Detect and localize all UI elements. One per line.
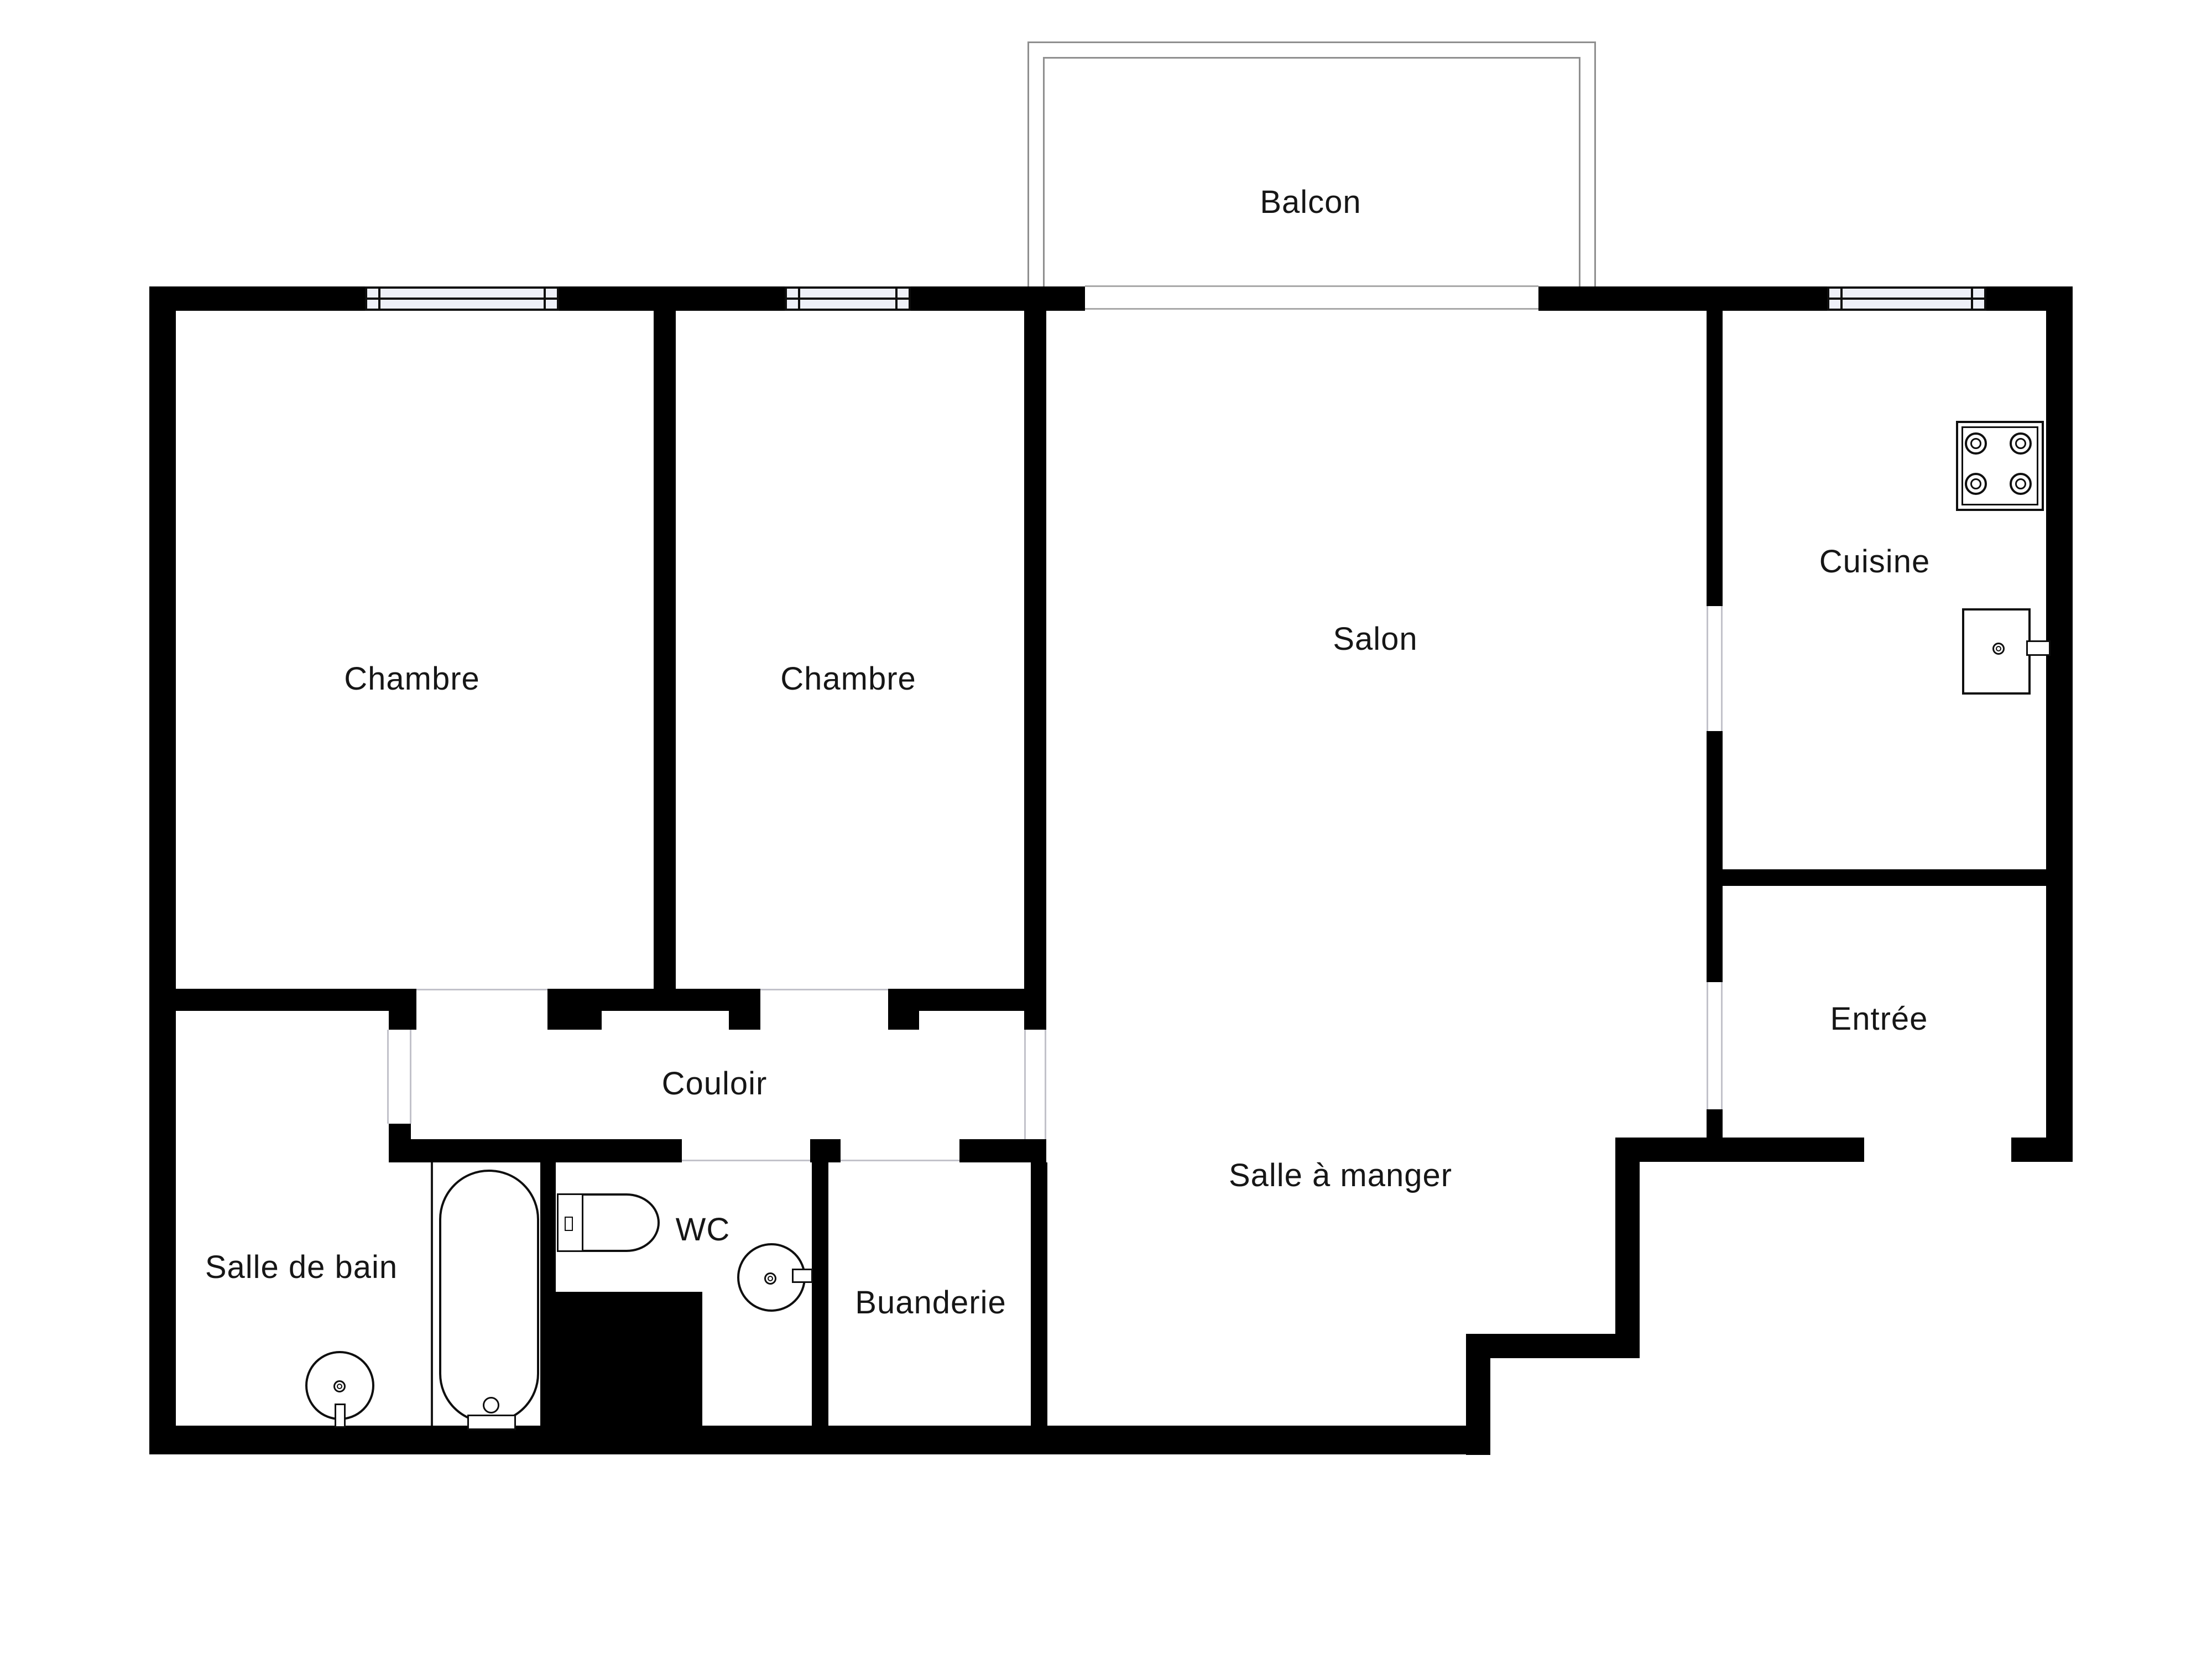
wall-laundry-left (812, 1162, 828, 1426)
door-threshold (1721, 982, 1723, 1109)
wall-kitchen-left (1707, 731, 1723, 982)
door-threshold (841, 1160, 959, 1161)
wall-entry-bottom (2011, 1138, 2073, 1162)
sink-drain-icon (1992, 643, 2005, 655)
balcony-railing-inner-icon (1043, 57, 1580, 286)
balcony-door-line (1085, 308, 1538, 310)
window-pane-line (787, 298, 909, 300)
bathtub-faucet-knob-icon (483, 1397, 499, 1413)
opening-line (1024, 1030, 1026, 1139)
wall-corridor-bottom (389, 1139, 682, 1162)
balcony-door-line (1085, 285, 1538, 287)
room-label-salon: Salon (1333, 623, 1417, 655)
wall-bedrooms-corridor (888, 989, 1024, 1011)
floor-plan: Balcon Chambre Chambre Salon Cuisine Ent… (0, 0, 2212, 1659)
room-label-chambre-2: Chambre (780, 663, 916, 695)
duct-shaft-block (556, 1292, 702, 1426)
bathtub-faucet-icon (467, 1415, 516, 1430)
window-frame-line (1840, 289, 1843, 309)
sink-drain-icon (333, 1380, 346, 1392)
sink-drain-icon (764, 1272, 776, 1285)
window-pane-line (1829, 298, 1984, 300)
room-label-buanderie: Buanderie (855, 1287, 1006, 1319)
faucet-icon (2026, 640, 2051, 656)
stove-burner-icon (1965, 473, 1987, 495)
wall-kitchen-entry-divider (1723, 869, 2046, 886)
wall-exterior-top (149, 286, 365, 311)
faucet-icon (335, 1404, 346, 1428)
door-threshold (760, 989, 888, 990)
room-label-entree: Entrée (1830, 1003, 1928, 1035)
toilet-flush-button-icon (565, 1217, 573, 1231)
wall-bedrooms-divider (654, 311, 676, 989)
door-threshold (1721, 606, 1723, 731)
door-jamb (389, 1010, 416, 1030)
door-jamb (389, 1124, 411, 1139)
wall-exterior-bottom (149, 1426, 1490, 1454)
door-threshold (1707, 982, 1708, 1109)
window-pane-line (367, 298, 557, 300)
door-threshold (1707, 606, 1708, 731)
wall-entry-bottom (1615, 1138, 1864, 1162)
wall-exterior-top (559, 286, 785, 311)
room-label-salle-de-bain: Salle de bain (205, 1251, 398, 1284)
window-icon (785, 286, 911, 311)
room-label-salle-a-manger: Salle à manger (1229, 1160, 1452, 1192)
wall-exterior-top (1538, 286, 1827, 311)
door-threshold (416, 989, 547, 990)
faucet-icon (792, 1269, 813, 1283)
stove-icon (1956, 421, 2044, 511)
wall-exterior-top (911, 286, 1085, 311)
toilet-bowl-icon (583, 1193, 660, 1252)
stove-burner-icon (1965, 432, 1987, 455)
window-icon (365, 286, 559, 311)
window-frame-line (1971, 289, 1973, 309)
wall-step-horizontal (1466, 1334, 1640, 1358)
wall-bathtub-right (540, 1162, 556, 1426)
wall-step-vertical (1615, 1138, 1640, 1358)
door-threshold (682, 1160, 810, 1161)
door-jamb (729, 1010, 760, 1030)
room-label-chambre-1: Chambre (344, 663, 480, 695)
wall-corridor-bottom (959, 1139, 1046, 1162)
stove-burner-icon (2010, 473, 2032, 495)
wall-bedroom-salon (1024, 311, 1046, 1030)
wall-laundry-right (1031, 1162, 1047, 1426)
door-jamb (547, 1010, 602, 1030)
wall-exterior-left (149, 286, 176, 1454)
window-frame-line (378, 289, 380, 309)
wall-corridor-bottom (810, 1139, 841, 1162)
stove-burner-icon (2010, 432, 2032, 455)
door-threshold (410, 1030, 411, 1124)
room-label-couloir: Couloir (662, 1068, 768, 1100)
room-label-cuisine: Cuisine (1819, 546, 1930, 578)
window-frame-line (798, 289, 800, 309)
opening-line (1045, 1030, 1046, 1139)
window-frame-line (895, 289, 898, 309)
room-label-wc: WC (676, 1214, 731, 1246)
door-jamb (888, 1010, 919, 1030)
bathtub-icon (439, 1170, 539, 1423)
wall-entry-left (1707, 1109, 1723, 1138)
wall-bedrooms-corridor (547, 989, 760, 1011)
wall-kitchen-left (1707, 311, 1723, 606)
room-label-balcon: Balcon (1260, 186, 1361, 218)
window-icon (1827, 286, 1986, 311)
wall-step-vertical (1466, 1334, 1490, 1455)
bathtub-enclosure-line (431, 1162, 433, 1426)
window-frame-line (544, 289, 546, 309)
wall-bedrooms-corridor (176, 989, 416, 1011)
wall-exterior-right (2046, 286, 2073, 1162)
door-threshold (387, 1030, 389, 1124)
